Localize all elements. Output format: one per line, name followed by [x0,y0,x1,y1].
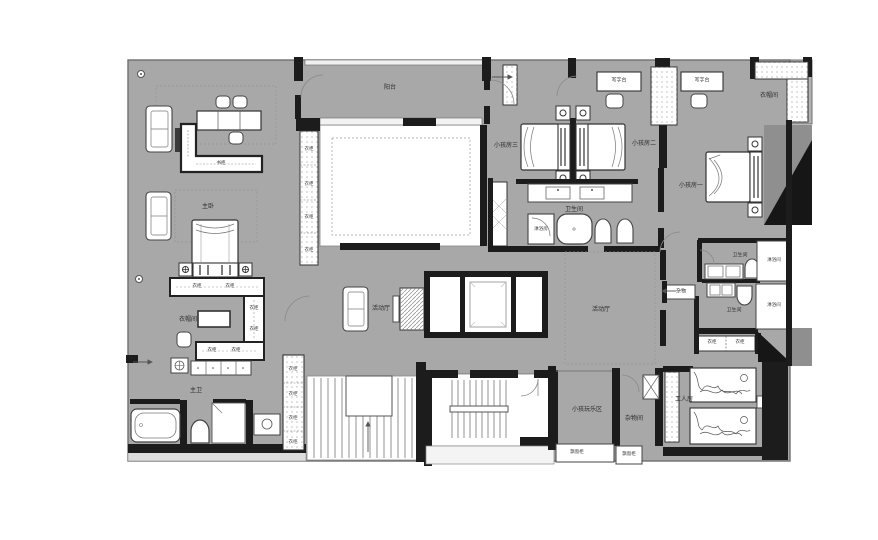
room-label-kids3: 小孩房三 [494,143,518,149]
room-label-worker: 工人房 [675,397,693,403]
bay-cabinet-1-box [556,444,614,462]
room-label-bath-r2: 卫生间 [726,309,741,314]
desk-1-chair [606,94,623,108]
vanity-icon [254,414,280,435]
room-label-storage: 杂物间 [625,416,643,422]
label-wardrobe: 衣柜 [305,183,314,188]
bathtub-icon-2 [557,214,592,244]
desk-2-chair [691,94,707,108]
room-label-activity-a: 活动厅 [372,306,390,312]
kids2-bed [576,124,625,170]
toilet-icon [595,219,611,243]
room-label-balcony: 阳台 [384,85,396,91]
vanity-upper [705,264,743,279]
label-wardrobe: 衣柜 [226,285,235,290]
shower-area [212,403,245,443]
label-bay-1: 飘窗柜 [570,451,584,456]
master-sofa-2 [146,192,171,240]
room-label-shower-r1: 淋浴间 [767,259,781,264]
room-label-master: 主卧 [202,204,214,210]
double-vanity-icon [528,184,632,202]
dresser [191,361,251,375]
label-wardrobe: 衣柜 [289,393,298,398]
stair-left [307,362,426,462]
label-wardrobe: 衣柜 [305,249,314,254]
toilet-icon [617,219,633,243]
closet-kids3-side [491,182,507,246]
label-desk-2: 写字台 [694,79,709,84]
closet-kids-divider [651,67,677,125]
activity-sofa [343,287,368,331]
label-wardrobe: 衣柜 [305,148,314,153]
worker-closet [665,372,679,442]
label-wardrobe: 衣柜 [289,368,298,373]
label-wardrobe: 衣柜 [305,216,314,221]
floor-plan-drawing [0,0,878,540]
toilet-icon [737,286,752,305]
stair-right [424,370,558,466]
toilet-icon [191,420,209,443]
dressing-sink [171,358,188,373]
label-wardrobe: 衣柜 [250,307,259,312]
label-wardrobe: 衣柜 [289,417,298,422]
label-wardrobe: 衣柜 [708,341,717,346]
room-label-shower-r2: 淋浴间 [767,304,781,309]
room-label-activity-b: 活动厅 [592,307,610,313]
label-wardrobe: 衣柜 [289,441,298,446]
label-bay-2: 飘窗柜 [622,453,636,458]
room-label-kids2: 小孩房二 [632,141,656,147]
floor-plan-page: 阳台 主卧 衣帽间 主卫 小孩房三 小孩房二 小孩房一 卫生间 淋浴房 活动厅 … [0,0,878,540]
shaft-icon [643,375,659,399]
room-label-bath-r1: 卫生间 [732,254,747,259]
worker-bed-2 [690,408,756,444]
vanity-lower [707,283,735,297]
master-sofa-1 [146,106,172,152]
worker-bed-1 [690,368,756,402]
label-wardrobe: 衣柜 [193,285,202,290]
room-label-kids-shower: 淋浴房 [534,228,548,233]
label-wardrobe: 衣柜 [208,349,217,354]
bathtub-icon [131,409,180,442]
room-label-kids1: 小孩房一 [679,183,703,189]
room-label-closet-tr: 衣帽间 [760,93,778,99]
label-wardrobe: 衣柜 [736,341,745,346]
room-label-master-closet: 衣帽间 [179,317,197,323]
worker-wardrobe-strip [694,333,761,354]
label-desk-1: 写字台 [611,79,626,84]
elevator-block [424,271,548,338]
room-label-play: 小孩玩乐区 [572,407,602,413]
room-label-kids-bath: 卫生间 [565,207,583,213]
room-label-master-bath: 主卫 [190,388,202,394]
label-bookcase: 书柜 [217,162,226,167]
label-wardrobe: 衣柜 [232,349,241,354]
kids3-bed [521,124,570,170]
label-sundries: 杂物 [676,290,686,295]
label-wardrobe: 衣柜 [250,328,259,333]
